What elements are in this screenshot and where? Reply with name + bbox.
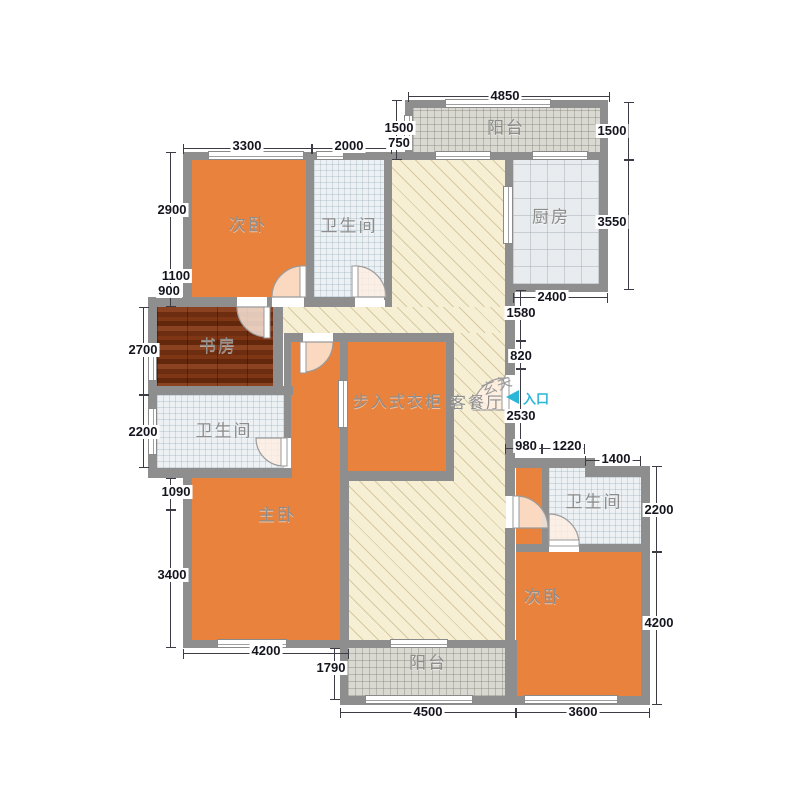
wall-segment xyxy=(340,471,454,481)
dimension-label: 820 xyxy=(508,349,534,363)
dimension-label: 2200 xyxy=(127,425,160,439)
wall-segment xyxy=(384,160,392,300)
hall-floor-top xyxy=(392,160,505,307)
wall-segment xyxy=(304,297,355,307)
window xyxy=(390,639,448,648)
sliding-door xyxy=(503,186,513,244)
dimension-label: 3550 xyxy=(596,215,629,229)
wall-segment xyxy=(542,468,549,544)
wall-segment xyxy=(148,468,292,478)
dimension-label: 1500 xyxy=(596,124,629,138)
sliding-door xyxy=(338,380,348,428)
window xyxy=(365,695,473,704)
window xyxy=(148,355,157,381)
dimension-label: 1100 xyxy=(160,269,192,283)
dimension-label: 750 xyxy=(386,136,412,150)
dimension-label: 2900 xyxy=(156,203,189,217)
dimension-label: 2200 xyxy=(643,503,676,517)
room-label-bath3: 卫生间 xyxy=(566,488,623,513)
dimension-label: 2530 xyxy=(505,409,538,423)
room-label-kitchen: 厨房 xyxy=(532,203,570,228)
dimension-label: 900 xyxy=(156,284,182,298)
room-label-balcony-bottom: 阳台 xyxy=(409,649,447,674)
window xyxy=(435,151,491,160)
dimension-label: 1790 xyxy=(315,661,348,675)
dimension-label: 2700 xyxy=(127,343,160,357)
dimension-label: 1090 xyxy=(160,485,193,499)
room-label-bath2: 卫生间 xyxy=(196,417,253,442)
wall-segment xyxy=(273,307,283,386)
window xyxy=(524,695,618,704)
room-label-study: 书房 xyxy=(199,332,237,357)
entry-label: 入口 xyxy=(523,389,549,408)
dimension-label: 1400 xyxy=(600,452,633,466)
room-label-master: 主卧 xyxy=(258,501,296,526)
dimension-label: 4500 xyxy=(412,705,445,719)
wall-segment xyxy=(333,333,454,342)
bedroom2-floor xyxy=(516,552,641,696)
dimension-label: 2400 xyxy=(536,290,569,304)
wall-segment xyxy=(267,297,272,307)
entry-arrow-icon xyxy=(506,390,519,404)
wall-segment xyxy=(306,160,314,300)
wall-segment xyxy=(579,544,641,552)
dimension-label: 1580 xyxy=(505,306,538,320)
dimension-label: 4200 xyxy=(643,616,676,630)
bedroom2-nook-floor xyxy=(516,468,542,552)
wall-segment xyxy=(148,297,237,307)
dimension-label: 3400 xyxy=(156,568,189,582)
wall-segment xyxy=(385,297,392,307)
room-label-bedroom1: 次卧 xyxy=(229,211,267,236)
wall-segment xyxy=(516,544,549,552)
dimension-label: 4850 xyxy=(489,89,522,103)
master-corridor-floor xyxy=(291,342,340,481)
wall-segment xyxy=(505,458,593,468)
dimension-label: 980 xyxy=(513,439,539,453)
dimension-label: 3600 xyxy=(567,705,600,719)
wall-segment xyxy=(340,481,349,648)
room-label-closet: 步入式衣柜 xyxy=(353,388,443,412)
wall-segment xyxy=(291,333,303,342)
dimension-label: 2000 xyxy=(333,139,366,153)
dimension-label: 1500 xyxy=(383,121,416,135)
dimension-label: 3300 xyxy=(231,139,264,153)
room-label-bedroom2: 次卧 xyxy=(524,583,562,608)
wall-segment xyxy=(284,333,291,438)
hall-floor-bottom xyxy=(349,481,506,641)
dimension-label: 1220 xyxy=(551,439,584,453)
window xyxy=(532,151,588,160)
floor-plan: 次卧 卫生间 阳台 厨房 书房 卫生间 步入式衣柜 客餐厅 主卧 卫生间 次卧 … xyxy=(0,0,800,800)
room-label-bath1: 卫生间 xyxy=(321,212,378,237)
wall-segment xyxy=(505,640,517,700)
wall-segment xyxy=(183,478,192,648)
room-label-balcony-top: 阳台 xyxy=(487,114,525,139)
wall-segment xyxy=(505,528,515,648)
dimension-label: 4200 xyxy=(250,644,283,658)
wall-segment xyxy=(148,386,293,395)
